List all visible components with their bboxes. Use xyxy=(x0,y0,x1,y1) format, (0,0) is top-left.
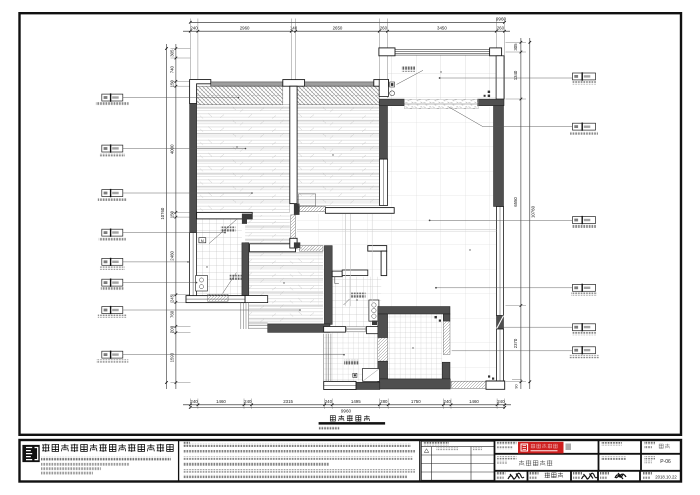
svg-text:2960: 2960 xyxy=(240,25,250,30)
svg-text:1340: 1340 xyxy=(513,70,518,80)
svg-text:140: 140 xyxy=(290,25,298,30)
svg-text:4000: 4000 xyxy=(170,144,175,154)
svg-text:2460: 2460 xyxy=(170,251,175,261)
svg-text:1590: 1590 xyxy=(170,352,175,362)
svg-text:3450: 3450 xyxy=(437,25,447,30)
svg-text:305: 305 xyxy=(170,49,175,57)
svg-text:P-06: P-06 xyxy=(660,459,671,465)
svg-text:245: 245 xyxy=(170,294,175,302)
svg-text:2650: 2650 xyxy=(333,25,343,30)
svg-text:9960: 9960 xyxy=(496,17,507,22)
svg-text:240: 240 xyxy=(497,399,505,404)
svg-text:240: 240 xyxy=(244,399,252,404)
svg-text:280: 280 xyxy=(380,399,388,404)
svg-text:740: 740 xyxy=(170,66,175,74)
svg-text:305: 305 xyxy=(513,43,518,51)
svg-text:2370: 2370 xyxy=(513,338,518,348)
svg-text:1460: 1460 xyxy=(216,399,226,404)
svg-text:1750: 1750 xyxy=(411,399,421,404)
svg-text:760: 760 xyxy=(170,310,175,318)
svg-text:10760: 10760 xyxy=(530,205,535,218)
svg-text:10760: 10760 xyxy=(160,207,165,220)
svg-text:9960: 9960 xyxy=(341,408,352,413)
svg-text:240: 240 xyxy=(190,399,198,404)
svg-text:1495: 1495 xyxy=(351,399,361,404)
svg-text:1460: 1460 xyxy=(469,399,479,404)
svg-text:240: 240 xyxy=(444,399,452,404)
svg-text:240: 240 xyxy=(325,399,333,404)
svg-text:260: 260 xyxy=(497,25,505,30)
svg-text:260: 260 xyxy=(380,25,388,30)
svg-text:240: 240 xyxy=(190,25,198,30)
svg-text:2315: 2315 xyxy=(283,399,293,404)
svg-text:M: M xyxy=(201,239,204,243)
svg-text:2018.10.22: 2018.10.22 xyxy=(655,475,677,480)
svg-text:6550: 6550 xyxy=(513,197,518,207)
svg-text:90: 90 xyxy=(515,384,519,388)
